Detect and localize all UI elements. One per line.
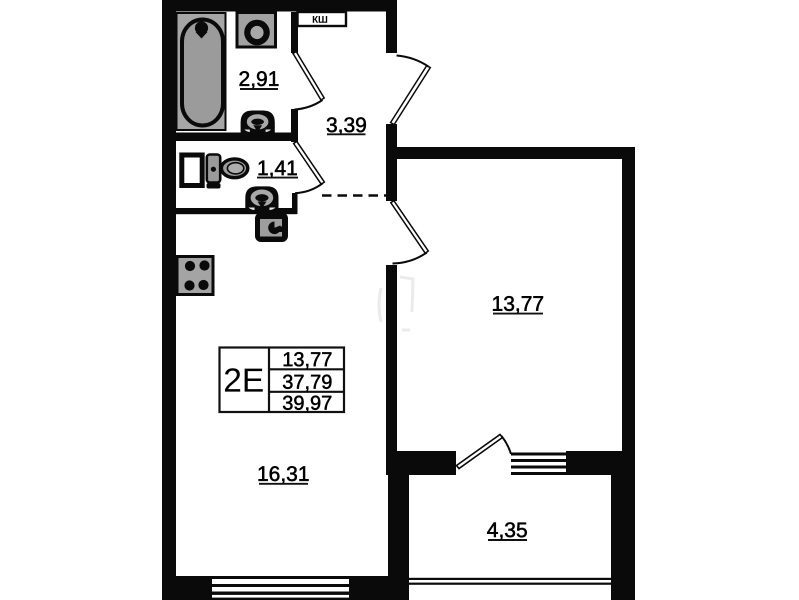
svg-text:16,31: 16,31 — [257, 463, 310, 486]
svg-text:2Е: 2Е — [223, 363, 264, 400]
svg-text:37,79: 37,79 — [282, 372, 332, 394]
svg-text:13,77: 13,77 — [282, 349, 332, 371]
svg-text:4,35: 4,35 — [487, 519, 528, 542]
svg-text:13,77: 13,77 — [492, 293, 545, 316]
svg-text:39,97: 39,97 — [282, 393, 332, 415]
svg-text:2,91: 2,91 — [239, 68, 280, 91]
svg-text:КШ: КШ — [312, 15, 328, 26]
